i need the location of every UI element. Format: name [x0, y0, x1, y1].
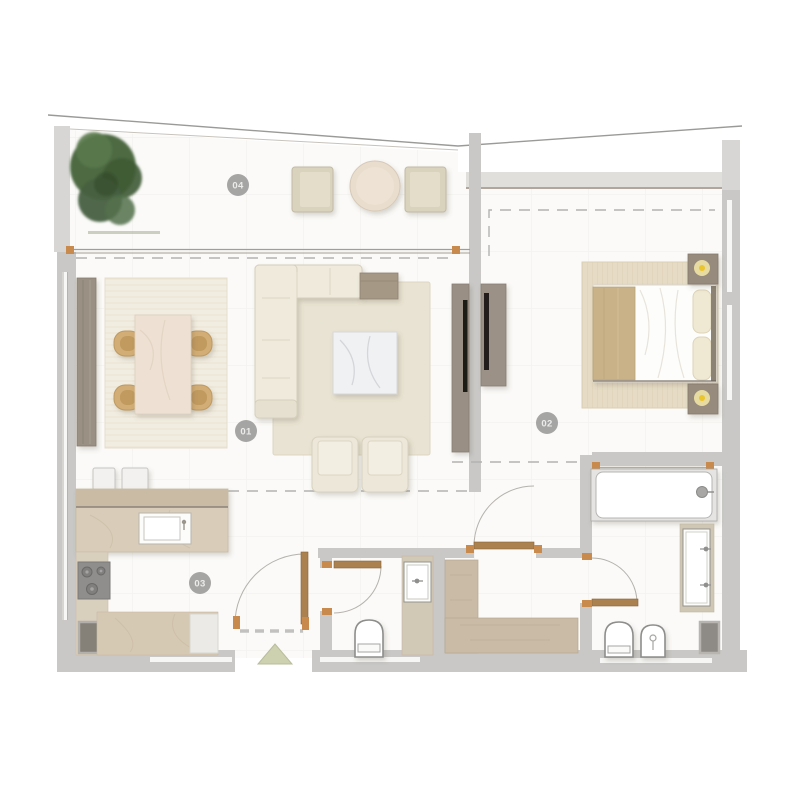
bathtub [591, 469, 717, 521]
pillow [693, 290, 711, 333]
svg-text:01: 01 [240, 427, 252, 438]
kitchen-island [76, 489, 228, 552]
sideboard [77, 278, 96, 446]
double-bed [593, 285, 716, 382]
door-jamb [534, 545, 542, 553]
wardrobe-bedroom [481, 284, 506, 386]
room-label-balcony: 04 [227, 174, 249, 196]
balcony-armchair [292, 167, 333, 212]
dishwasher [190, 614, 218, 653]
lamp [699, 265, 705, 271]
balcony-round-table [350, 161, 400, 211]
tv-unit-living [452, 284, 469, 452]
room-label-bedroom: 02 [536, 412, 558, 434]
svg-text:02: 02 [541, 419, 552, 430]
tv-screen [463, 300, 468, 392]
bath-door-leaf [592, 599, 638, 606]
kitchen-bottom-counter [97, 612, 218, 655]
door-jamb [302, 617, 309, 630]
powder-corridor-wall [433, 558, 445, 655]
pillow [693, 337, 711, 380]
door-jamb [322, 608, 332, 615]
balcony-parapet-wall [54, 126, 70, 252]
coffee-table [333, 332, 397, 394]
bath-top-wall [592, 452, 740, 466]
tub-faucet [697, 487, 708, 498]
svg-text:04: 04 [232, 181, 244, 192]
entry-door-leaf [301, 552, 308, 624]
exterior-band [458, 126, 740, 172]
nightstand [688, 384, 718, 414]
door-jamb [466, 545, 474, 553]
bidet [641, 625, 665, 657]
floor-plan: 01 02 03 04 [0, 0, 800, 800]
bedroom-top-wall [466, 172, 722, 189]
bedroom-door-leaf [474, 542, 534, 549]
powder-sink [404, 562, 431, 602]
lamp [699, 395, 705, 401]
lounge-chair [312, 437, 358, 492]
cooktop [78, 562, 110, 599]
bar-stool [122, 468, 148, 490]
room-label-living: 01 [235, 420, 257, 442]
powder-toilet [355, 620, 383, 657]
tv-screen [484, 293, 489, 370]
window-jamb [66, 246, 74, 254]
side-table [360, 273, 398, 299]
double-vanity [683, 529, 711, 606]
window-jamb [452, 246, 460, 254]
service-shaft-door [700, 622, 719, 653]
door-jamb [322, 561, 332, 568]
hall-wall-left [318, 548, 474, 558]
master-toilet [605, 622, 633, 657]
kitchen-sink [139, 513, 191, 544]
bed-bench [593, 287, 635, 380]
headboard [711, 286, 716, 381]
bar-stool [93, 468, 115, 490]
lounge-chair [362, 437, 408, 492]
room-label-kitchen: 03 [189, 572, 211, 594]
svg-text:03: 03 [194, 579, 205, 590]
nightstand [688, 254, 718, 284]
door-jamb [582, 553, 592, 560]
divider-wall [469, 133, 481, 492]
door-jamb [233, 616, 240, 629]
powder-door-leaf [334, 561, 381, 568]
dining-table [135, 315, 191, 414]
oven [79, 622, 99, 653]
floor-plan-canvas: 01 02 03 04 [0, 0, 800, 800]
balcony-armchair [405, 167, 446, 212]
door-jamb [582, 600, 592, 607]
planter-strip [88, 231, 160, 234]
